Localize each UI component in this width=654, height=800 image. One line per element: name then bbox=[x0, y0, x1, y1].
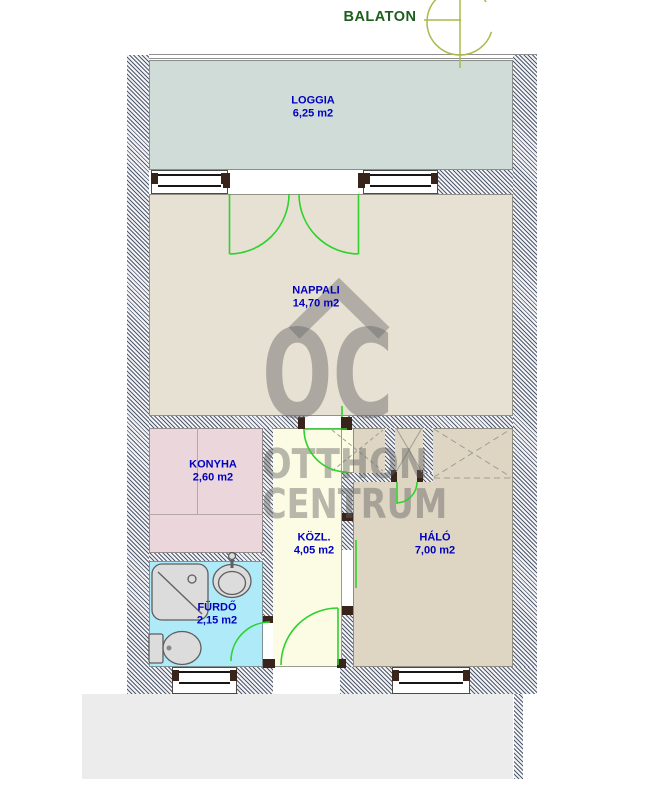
wall-kitchen-bath bbox=[149, 553, 263, 561]
wall-hall-bedroom-upper bbox=[342, 473, 353, 550]
room-name: FÜRDŐ bbox=[197, 602, 237, 615]
window-pane bbox=[370, 174, 431, 187]
plan-title: BALATON bbox=[343, 9, 416, 25]
door-jamb bbox=[358, 173, 365, 188]
room-area: 2,15 m2 bbox=[197, 614, 237, 627]
wall-closet-horizontal-1 bbox=[342, 473, 397, 482]
window-cap bbox=[172, 670, 179, 681]
window-cap bbox=[392, 670, 399, 681]
wall-bottom-1 bbox=[127, 667, 172, 694]
compass-circle bbox=[427, 0, 493, 55]
room-area: 7,00 m2 bbox=[415, 544, 455, 557]
room-name: LOGGIA bbox=[291, 95, 334, 108]
window-pane bbox=[158, 174, 221, 187]
label-loggia: LOGGIA 6,25 m2 bbox=[291, 95, 334, 120]
wall-right bbox=[513, 55, 537, 694]
outdoor-walkway bbox=[82, 694, 513, 779]
door-jamb bbox=[263, 616, 273, 623]
room-name: KÖZL. bbox=[294, 532, 334, 545]
kitchen-counter-line bbox=[149, 514, 263, 515]
window-pane bbox=[179, 671, 230, 684]
label-kozl: KÖZL. 4,05 m2 bbox=[294, 532, 334, 557]
room-name: NAPPALI bbox=[292, 285, 339, 298]
room-name: HÁLÓ bbox=[415, 532, 455, 545]
label-nappali: NAPPALI 14,70 m2 bbox=[292, 285, 339, 310]
window-pane bbox=[399, 671, 463, 684]
label-halo: HÁLÓ 7,00 m2 bbox=[415, 532, 455, 557]
door-jamb bbox=[391, 470, 397, 482]
wall-right-stub bbox=[514, 694, 523, 779]
door-jamb bbox=[341, 417, 352, 430]
wall-bottom-4 bbox=[470, 667, 537, 694]
wall-middle-left bbox=[149, 416, 305, 428]
window-loggia-right bbox=[363, 170, 438, 194]
wall-left bbox=[127, 55, 149, 694]
room-konyha bbox=[149, 428, 263, 553]
room-area: 14,70 m2 bbox=[292, 297, 339, 310]
door-jamb bbox=[263, 659, 275, 668]
window-bathroom bbox=[172, 667, 237, 694]
wall-loggia-band-right bbox=[438, 170, 513, 194]
label-konyha: KONYHA 2,60 m2 bbox=[189, 459, 237, 484]
door-jamb bbox=[337, 659, 346, 668]
room-area: 2,60 m2 bbox=[189, 471, 237, 484]
room-area: 4,05 m2 bbox=[294, 544, 334, 557]
wall-bottom-2 bbox=[237, 667, 273, 694]
loggia-railing-line bbox=[149, 58, 537, 59]
floor-plan: BALATON bbox=[0, 0, 654, 800]
window-bedroom bbox=[392, 667, 470, 694]
loggia-railing-line bbox=[149, 54, 537, 55]
window-cap bbox=[151, 173, 158, 184]
window-cap bbox=[431, 173, 438, 184]
door-jamb bbox=[417, 470, 423, 482]
door-jamb bbox=[342, 513, 353, 521]
door-jamb bbox=[223, 173, 230, 188]
wall-hall-left-upper bbox=[263, 428, 273, 623]
door-jamb bbox=[298, 417, 305, 429]
wall-hall-bedroom-lower bbox=[342, 607, 353, 667]
room-name: KONYHA bbox=[189, 459, 237, 472]
wall-middle-right bbox=[347, 416, 513, 428]
window-loggia-left bbox=[151, 170, 228, 194]
window-cap bbox=[463, 670, 470, 681]
window-cap bbox=[230, 670, 237, 681]
wall-bottom-3 bbox=[340, 667, 392, 694]
label-furdo: FÜRDŐ 2,15 m2 bbox=[197, 602, 237, 627]
door-jamb bbox=[342, 606, 353, 615]
room-area: 6,25 m2 bbox=[291, 107, 334, 120]
